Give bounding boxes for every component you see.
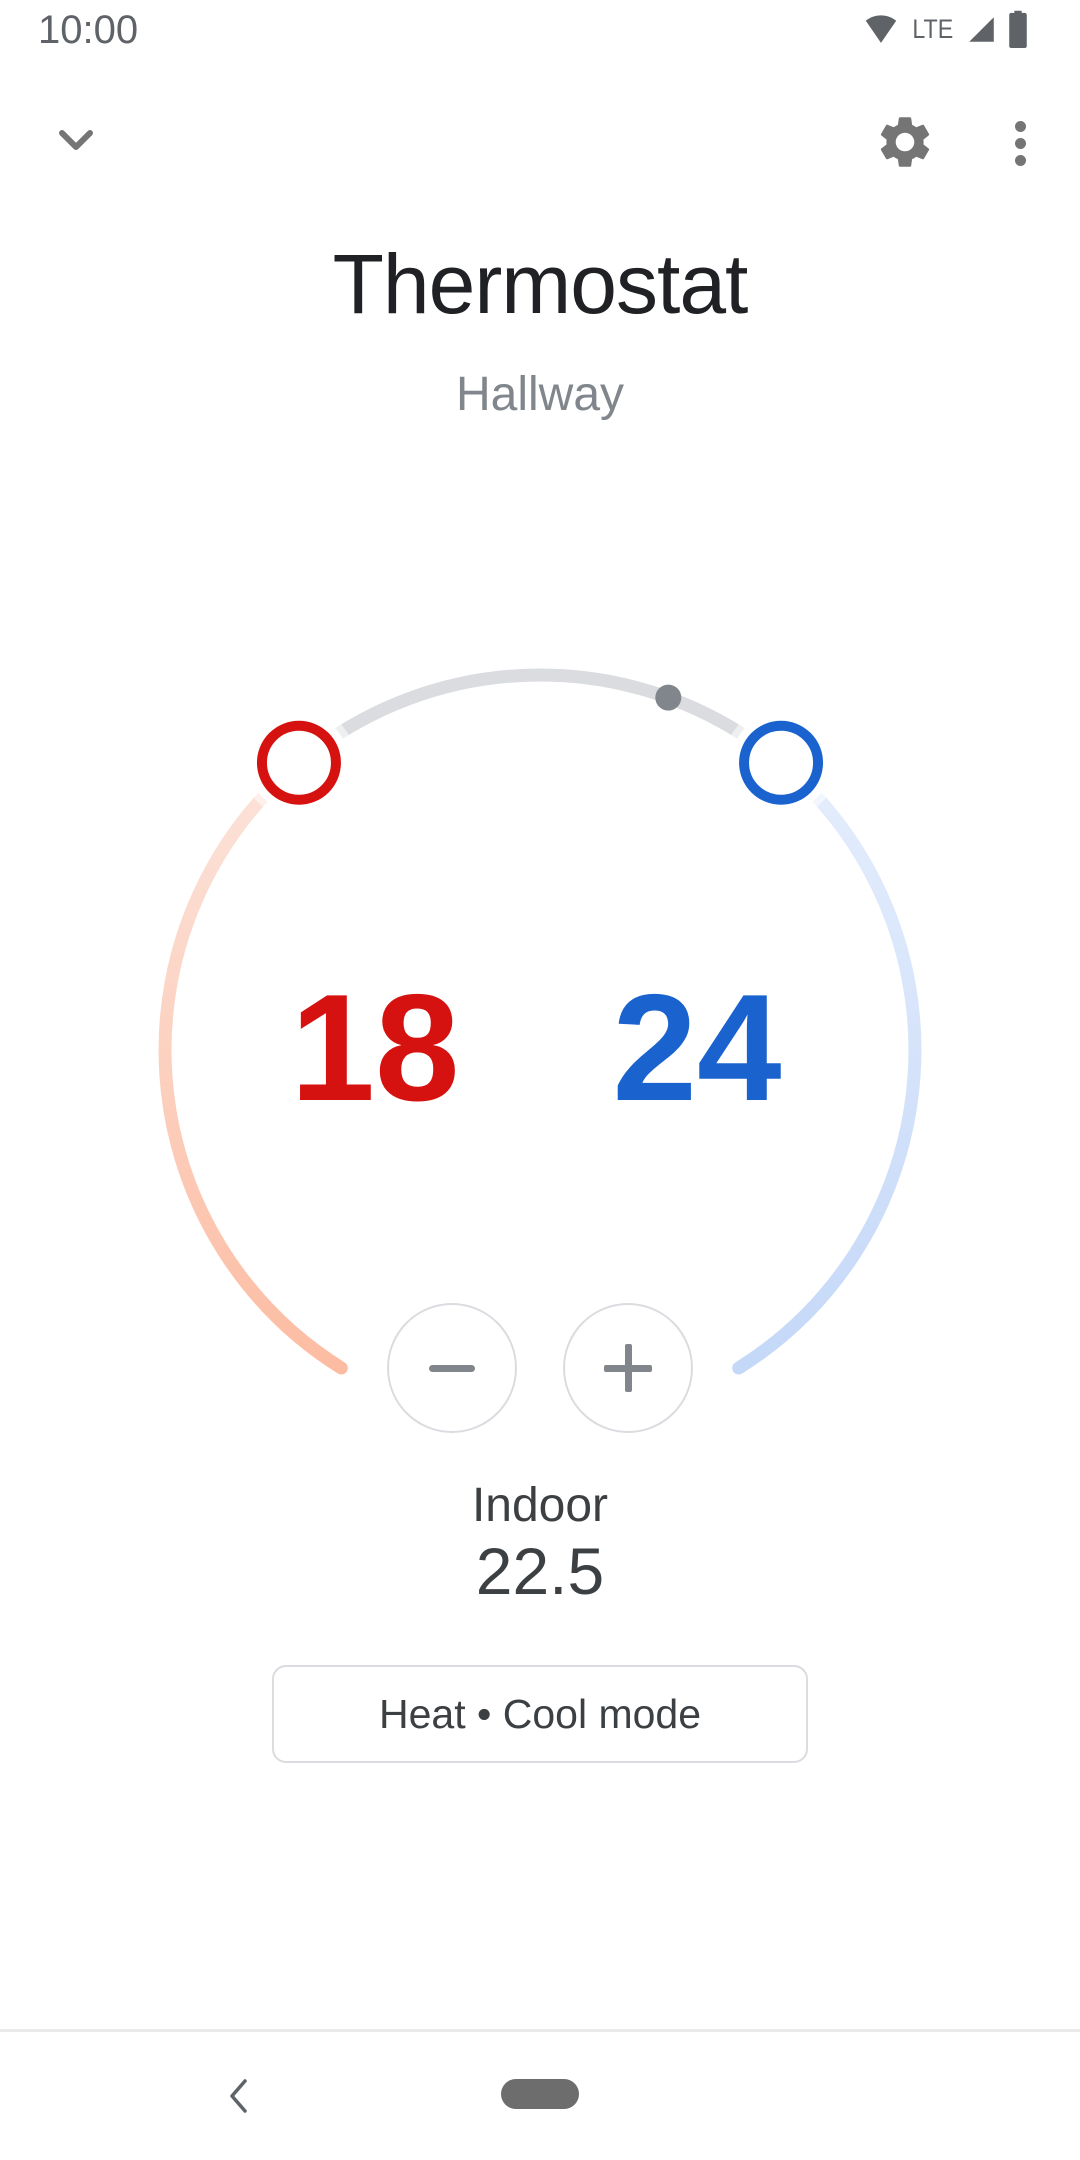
indoor-temp-value: 22.5 (0, 1534, 1080, 1608)
thermostat-dial (0, 0, 1080, 2160)
decrease-button[interactable] (387, 1303, 517, 1433)
increase-button[interactable] (563, 1303, 693, 1433)
thermostat-screen: 10:00 LTE (0, 0, 1080, 2160)
mode-button[interactable]: Heat • Cool mode (272, 1665, 808, 1763)
cool-handle[interactable] (724, 706, 838, 820)
current-temp-dot (655, 685, 681, 711)
heat-handle[interactable] (242, 706, 356, 820)
home-pill[interactable] (501, 2079, 579, 2109)
back-button[interactable] (206, 2065, 270, 2129)
indoor-label: Indoor (0, 1480, 1080, 1532)
dial-track (299, 675, 781, 763)
cool-handle-ring[interactable] (744, 726, 818, 800)
heat-setpoint-value: 18 (290, 972, 459, 1124)
minus-icon (429, 1365, 475, 1372)
heat-handle-ring[interactable] (262, 726, 336, 800)
cool-setpoint-value: 24 (612, 972, 781, 1124)
plus-icon (604, 1344, 652, 1392)
back-icon (227, 2078, 249, 2117)
nav-divider (0, 2029, 1080, 2032)
